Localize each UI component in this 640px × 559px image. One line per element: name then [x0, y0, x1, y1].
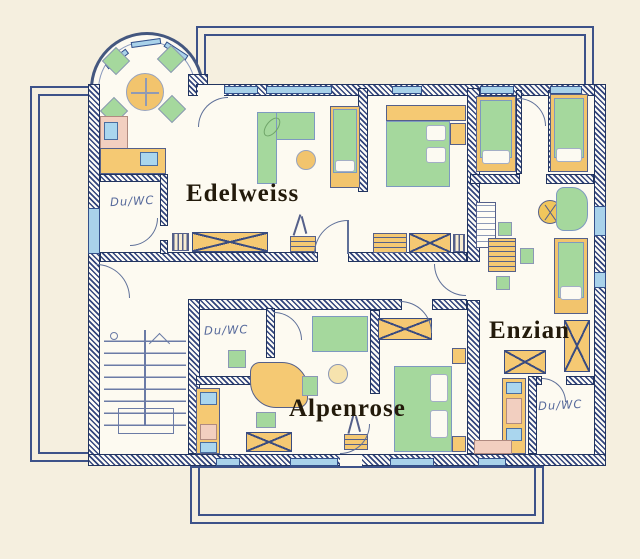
kitchen-appliance-alpenrose [200, 442, 217, 453]
wall-edelweiss-bath-right2 [160, 240, 168, 254]
stairs-landing [118, 408, 174, 434]
double-bed-edelweiss-pillow-2 [426, 147, 446, 163]
mat-enzian [496, 276, 510, 290]
balcony-bottom [190, 466, 544, 524]
armchair-enzian [556, 187, 588, 231]
window-bottom-4 [478, 458, 506, 466]
sofa-alpenrose [312, 316, 368, 352]
bedside-table-edelweiss [450, 123, 466, 145]
double-bed-alpenrose-pillow-1 [430, 374, 448, 402]
bedside-alpenrose-2 [452, 436, 466, 452]
bedside-alpenrose-1 [452, 348, 466, 364]
wardrobe-edelweiss-2 [409, 233, 451, 253]
kitchen-sink-alpenrose [200, 392, 217, 405]
window-right-2 [594, 272, 606, 288]
chair-alpenrose-3 [228, 350, 246, 368]
window-bottom-2 [290, 458, 338, 466]
balcony-left [30, 86, 92, 462]
dresser-enzian [488, 238, 516, 272]
vanity-stool-enzian [498, 222, 512, 236]
wall-alpenrose-top-left [188, 299, 402, 310]
bath-label-alpenrose: Du/WC [204, 322, 249, 338]
chair-alpenrose-1 [302, 376, 318, 396]
kitchenette-stove-enzian [506, 398, 522, 424]
kitchen-stove-alpenrose [200, 424, 217, 440]
room-label-enzian: Enzian [489, 317, 570, 345]
wall-enzian-bed2-bottom [546, 174, 594, 184]
door-edelweiss-leaf [347, 220, 349, 254]
bath-label-enzian: Du/WC [538, 397, 583, 413]
wall-edelweiss-bath-top [100, 174, 166, 182]
radiator-edelweiss-2 [453, 234, 465, 252]
single-bed-edelweiss-pillow [335, 160, 355, 172]
room-label-edelweiss: Edelweiss [186, 180, 299, 208]
window-top-2 [266, 86, 332, 94]
room-label-alpenrose: Alpenrose [289, 395, 406, 423]
window-bottom-3 [390, 458, 434, 466]
kitchen-sink-edelweiss [140, 152, 158, 166]
double-bed-edelweiss-headboard [386, 105, 466, 121]
single-bed-enzian-3-pillow [560, 286, 582, 300]
single-bed-enzian-2-pillow [556, 148, 582, 162]
stool-alpenrose [328, 364, 348, 384]
wall-alpenrose-enzian [467, 300, 480, 454]
window-bottom-1 [216, 458, 240, 466]
bench-enzian [474, 440, 512, 454]
window-top-3 [392, 86, 422, 94]
kitchen-appliance-edelweiss [104, 122, 118, 140]
window-top-4 [480, 86, 514, 94]
radiator-edelweiss-1 [172, 233, 189, 251]
balcony-door-gap-top [198, 85, 224, 96]
wall-enzian-bath-top-b [566, 376, 594, 385]
wall-edelweiss-bath-right [160, 174, 168, 226]
wardrobe-alpenrose-1 [246, 432, 292, 452]
wardrobe-edelweiss-1 [192, 232, 268, 252]
bath-label-edelweiss: Du/WC [110, 193, 155, 209]
window-left-1 [88, 208, 100, 254]
balcony-top [196, 26, 594, 88]
wall-alpenrose-bath-bottom [196, 376, 256, 385]
bay-round-table [126, 73, 164, 111]
balcony-door-gap-bottom [340, 455, 362, 466]
tv-stand-edelweiss [290, 236, 316, 252]
wardrobe-enzian-2 [504, 350, 546, 374]
window-right-1 [594, 206, 606, 236]
wall-corridor-right [348, 252, 467, 262]
floor-plan-canvas: Edelweiss Alpenrose Enzian Du/WC Du/WC D… [0, 0, 640, 559]
window-top-5 [550, 86, 582, 94]
chair-alpenrose-2 [256, 412, 276, 428]
double-bed-edelweiss-pillow-1 [426, 125, 446, 141]
wall-enzian-bed1-bottom [470, 174, 520, 184]
wall-enzian-bath-left [528, 376, 537, 454]
window-top-1 [224, 86, 258, 94]
wall-corridor-left [100, 252, 318, 262]
kitchenette-sink-enzian [506, 382, 522, 394]
chair-enzian [520, 248, 534, 264]
double-bed-alpenrose-pillow-2 [430, 410, 448, 438]
side-table-edelweiss [296, 150, 316, 170]
wall-alpenrose-top-right [432, 299, 467, 310]
dresser-edelweiss [373, 233, 407, 253]
stairs-newel [110, 332, 118, 340]
single-bed-enzian-1-pillow [482, 150, 510, 164]
